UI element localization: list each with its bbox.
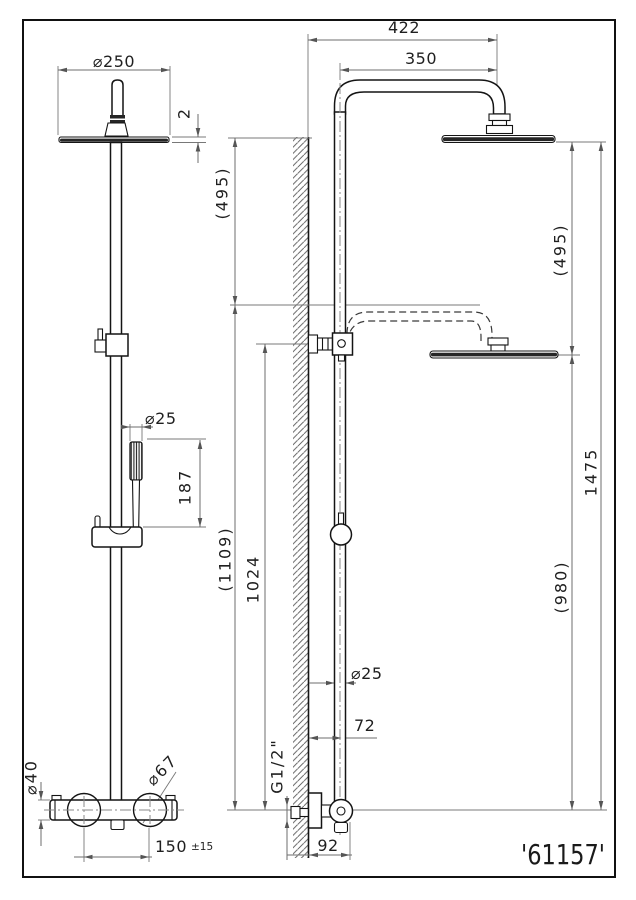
rain-head-spray-face-side [443, 137, 554, 141]
elbow-flange [309, 793, 322, 828]
dim-arm-reach-pipe: 350 [405, 49, 437, 68]
wall-section [293, 137, 309, 858]
hand-shower-holder [92, 527, 142, 547]
dim-valve-body-diameter: ⌀40 [22, 759, 41, 795]
dim-lowered-height: (980) [552, 560, 571, 613]
stem-ring [110, 115, 125, 119]
head-nut [493, 121, 507, 126]
dim-handshower-diameter: ⌀25 [145, 409, 177, 428]
head-cone [105, 123, 128, 136]
elbow-bore [337, 807, 345, 815]
dim-head-drop-right: (495) [551, 223, 570, 276]
bracket-handle [339, 355, 345, 361]
dim-head-thickness: 2 [175, 107, 194, 119]
bracket-stem [318, 338, 333, 350]
hand-shower-handle [133, 480, 140, 527]
bracket-flange [309, 335, 318, 353]
bracket-pin-front [98, 329, 103, 340]
dim-head-drop-left: (495) [213, 166, 232, 219]
inlet-neck [300, 809, 309, 817]
dim-overall-drop: (1109) [216, 526, 235, 591]
dim-inlet-thread: G1/2" [268, 738, 287, 794]
dim-pipe-diameter: ⌀25 [351, 664, 383, 683]
inlet-connector [291, 807, 300, 819]
rain-head-spray-face [60, 139, 168, 142]
slider-knob [331, 524, 352, 545]
dim-hose-centers: 150 [155, 837, 187, 856]
part-number: '61157' [521, 838, 605, 871]
lowered-head-nut [488, 338, 508, 345]
dim-handshower-length: 187 [176, 469, 195, 506]
bracket-screw [338, 340, 346, 348]
dim-hose-centers-tolerance: ±15 [191, 841, 213, 853]
bracket-knob-front [95, 340, 106, 352]
mixer-outlet [111, 820, 124, 830]
lowered-head-nut [491, 345, 505, 351]
head-stem [112, 80, 123, 117]
dim-arm-reach-wall: 422 [388, 18, 420, 37]
technical-drawing-page: ⌀250 2 ⌀25 187 (1109) 1024 (495) ⌀40 ⌀67… [0, 0, 636, 900]
riser-pipe-front [111, 143, 122, 801]
head-nut [489, 114, 510, 121]
dim-rail-length: 1024 [244, 555, 263, 604]
holder-pin [95, 516, 100, 528]
dim-wall-to-elbow: 92 [317, 836, 338, 855]
dim-total-height: 1475 [582, 448, 601, 497]
dim-head-diameter: ⌀250 [93, 52, 135, 71]
dim-wall-to-pipe: 72 [354, 716, 375, 735]
hand-shower-head [130, 442, 142, 480]
shower-system-drawing: ⌀250 2 ⌀25 187 (1109) 1024 (495) ⌀40 ⌀67… [0, 0, 636, 900]
wall-bracket-front [106, 334, 128, 356]
head-nut [487, 126, 513, 134]
slider-pin [339, 513, 344, 524]
elbow-outlet [335, 823, 348, 833]
lowered-head-spray-face [431, 353, 557, 357]
